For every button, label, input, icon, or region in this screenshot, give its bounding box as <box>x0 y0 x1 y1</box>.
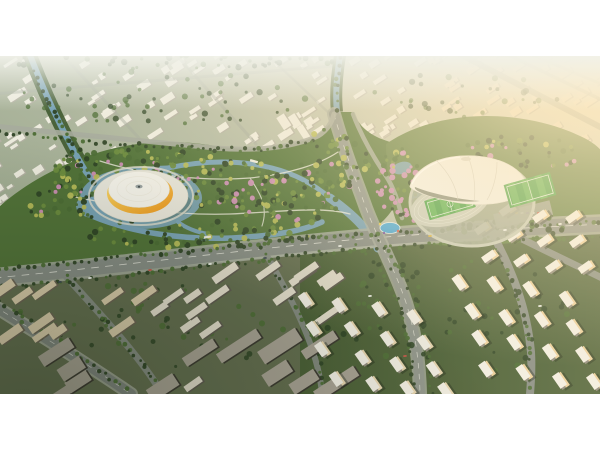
letterbox-bottom <box>0 394 600 450</box>
letterbox-top <box>0 0 600 56</box>
aerial-rendering <box>0 56 600 394</box>
light-overlay <box>0 56 600 394</box>
corner-shade <box>0 56 600 394</box>
screenshot-canvas <box>0 0 600 450</box>
